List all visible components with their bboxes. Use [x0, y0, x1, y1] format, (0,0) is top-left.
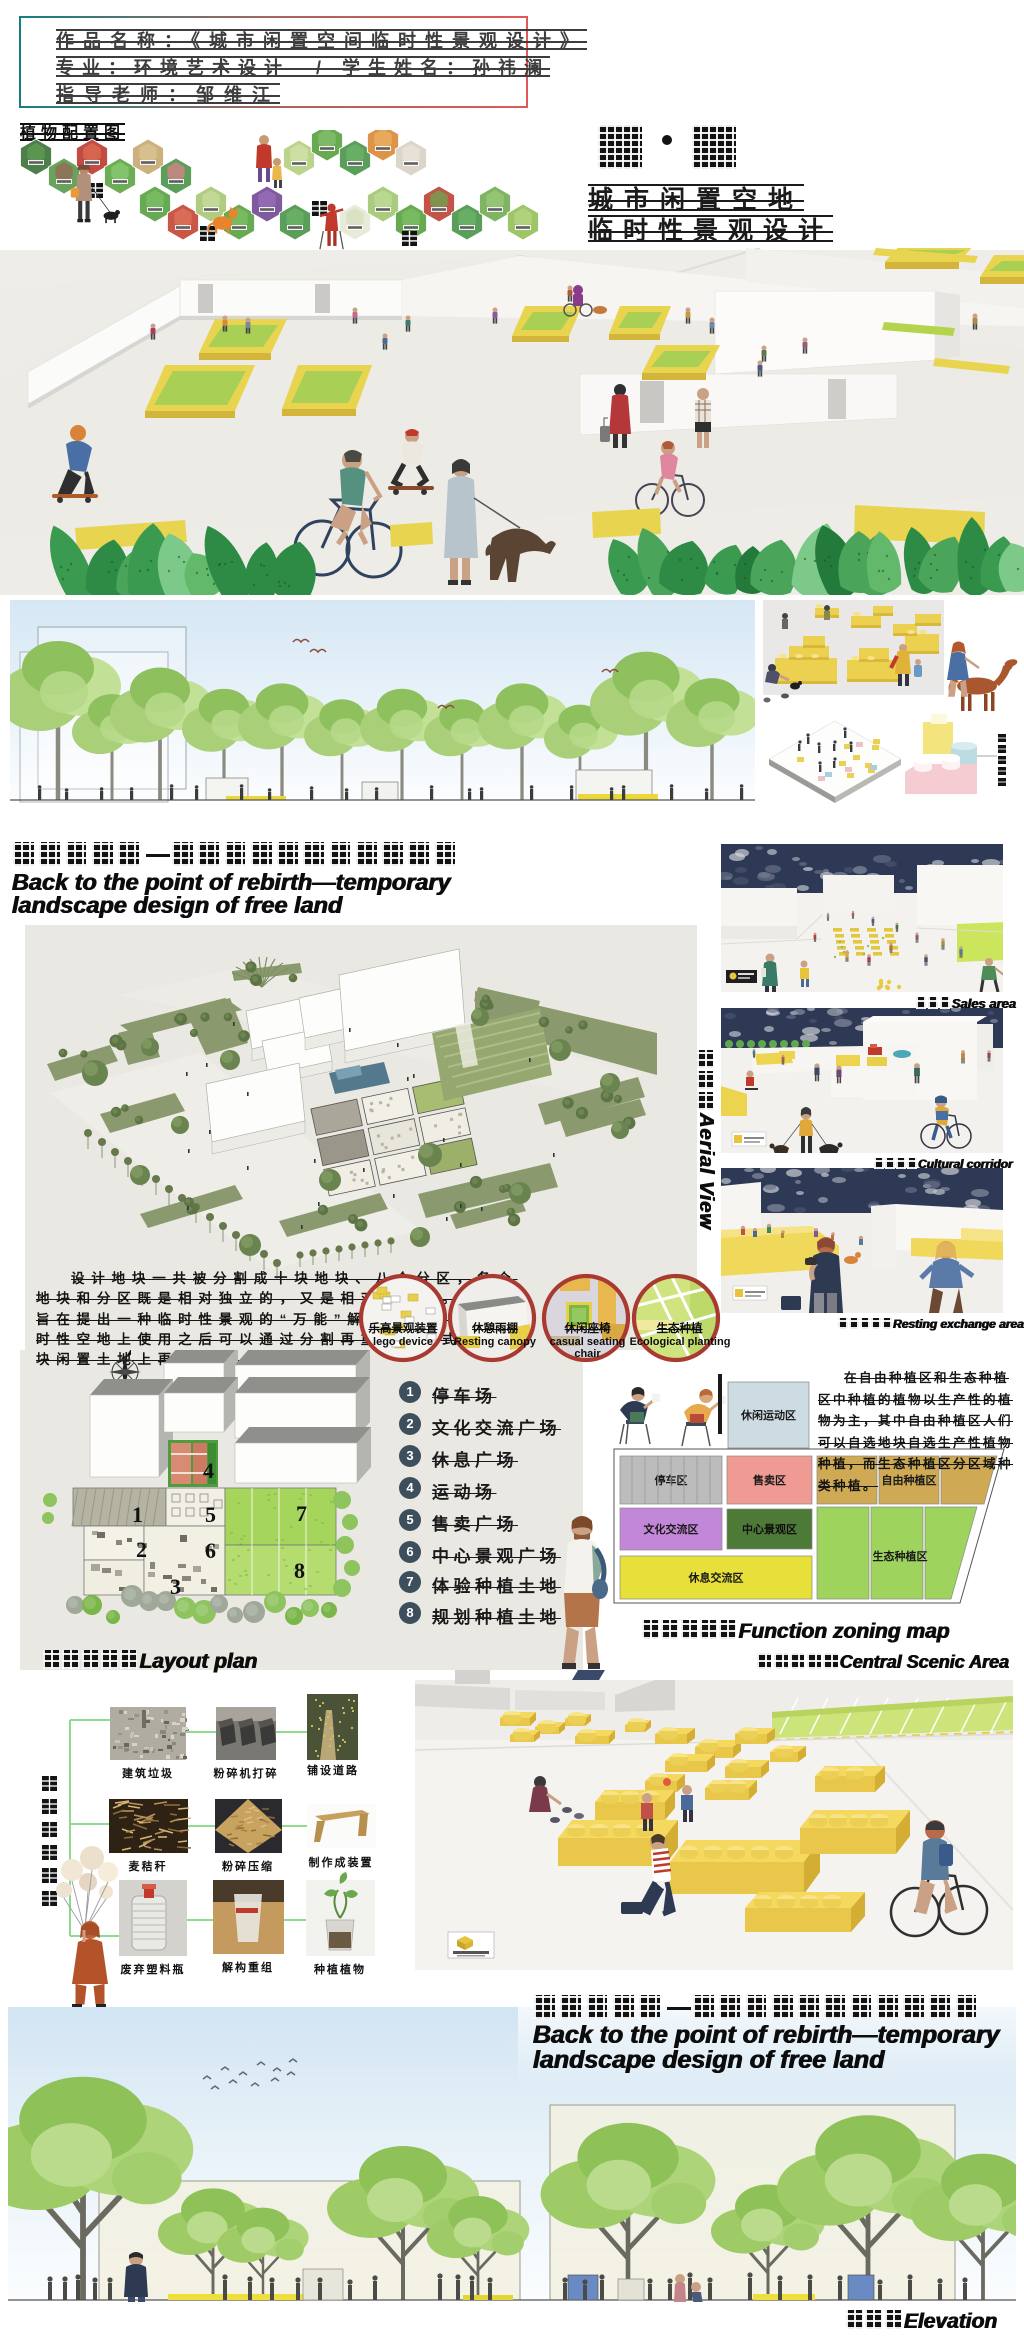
svg-text:4: 4: [203, 1458, 214, 1483]
svg-text:售卖区: 售卖区: [752, 1473, 786, 1487]
svg-text:种植植物: 种植植物: [313, 1962, 366, 1976]
svg-text:粉碎机打碎: 粉碎机打碎: [214, 1766, 279, 1780]
svg-text:2: 2: [136, 1537, 147, 1562]
svg-text:麦秸秆: 麦秸秆: [129, 1859, 168, 1873]
svg-text:中心景观区: 中心景观区: [742, 1522, 797, 1536]
svg-text:文化交流区: 文化交流区: [644, 1522, 699, 1536]
svg-text:3: 3: [170, 1574, 181, 1599]
svg-text:7: 7: [296, 1501, 307, 1526]
svg-text:解构重组: 解构重组: [222, 1960, 274, 1974]
svg-text:1: 1: [132, 1502, 143, 1527]
svg-text:制作成装置: 制作成装置: [309, 1855, 374, 1869]
svg-text:生态种植区: 生态种植区: [873, 1549, 928, 1563]
svg-text:5: 5: [205, 1502, 216, 1527]
svg-text:废弃塑料瓶: 废弃塑料瓶: [121, 1962, 186, 1976]
svg-text:8: 8: [294, 1558, 305, 1583]
svg-text:6: 6: [205, 1538, 216, 1563]
svg-text:休息交流区: 休息交流区: [688, 1571, 744, 1585]
svg-text:铺设道路: 铺设道路: [307, 1763, 359, 1777]
svg-text:粉碎压缩: 粉碎压缩: [222, 1859, 274, 1873]
svg-text:休闲运动区: 休闲运动区: [740, 1408, 796, 1422]
svg-text:建筑垃圾: 建筑垃圾: [122, 1766, 174, 1780]
